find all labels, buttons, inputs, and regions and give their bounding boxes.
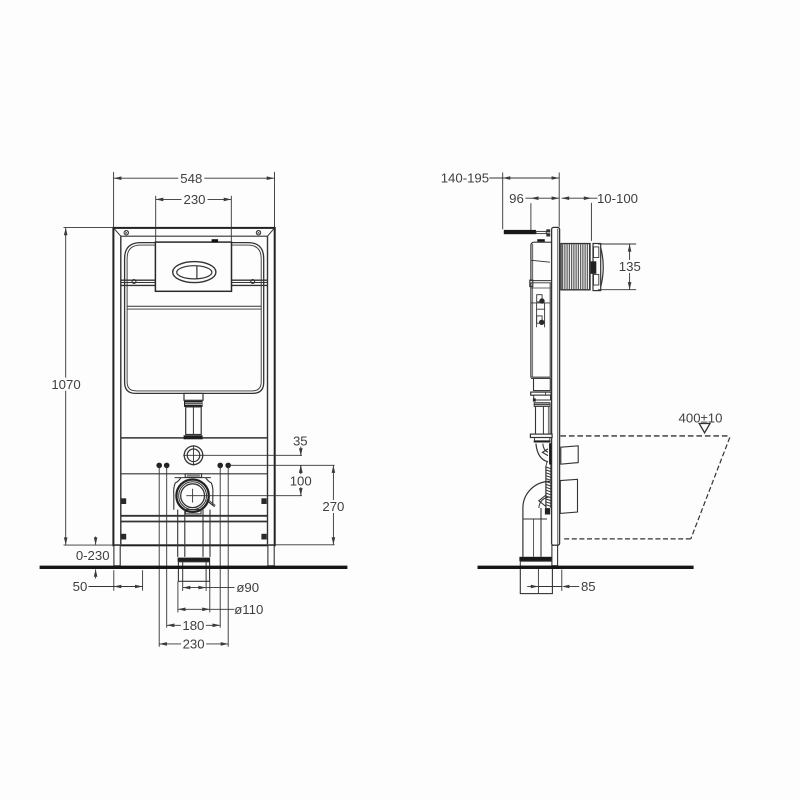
svg-text:ø90: ø90 [236, 580, 259, 595]
svg-text:180: 180 [182, 618, 204, 633]
svg-text:100: 100 [290, 473, 312, 488]
svg-text:85: 85 [581, 579, 596, 594]
svg-text:35: 35 [293, 434, 308, 449]
svg-text:96: 96 [509, 191, 524, 206]
svg-text:50: 50 [73, 579, 88, 594]
svg-text:140-195: 140-195 [441, 171, 489, 186]
svg-text:ø110: ø110 [234, 602, 263, 617]
svg-text:548: 548 [180, 171, 202, 186]
svg-text:0-230: 0-230 [76, 548, 110, 563]
svg-text:230: 230 [183, 637, 205, 652]
svg-text:10-100: 10-100 [597, 191, 638, 206]
svg-text:230: 230 [183, 192, 205, 207]
svg-text:400±10: 400±10 [679, 410, 723, 425]
svg-text:270: 270 [322, 499, 344, 514]
svg-text:135: 135 [619, 259, 641, 274]
svg-text:1070: 1070 [51, 377, 80, 392]
